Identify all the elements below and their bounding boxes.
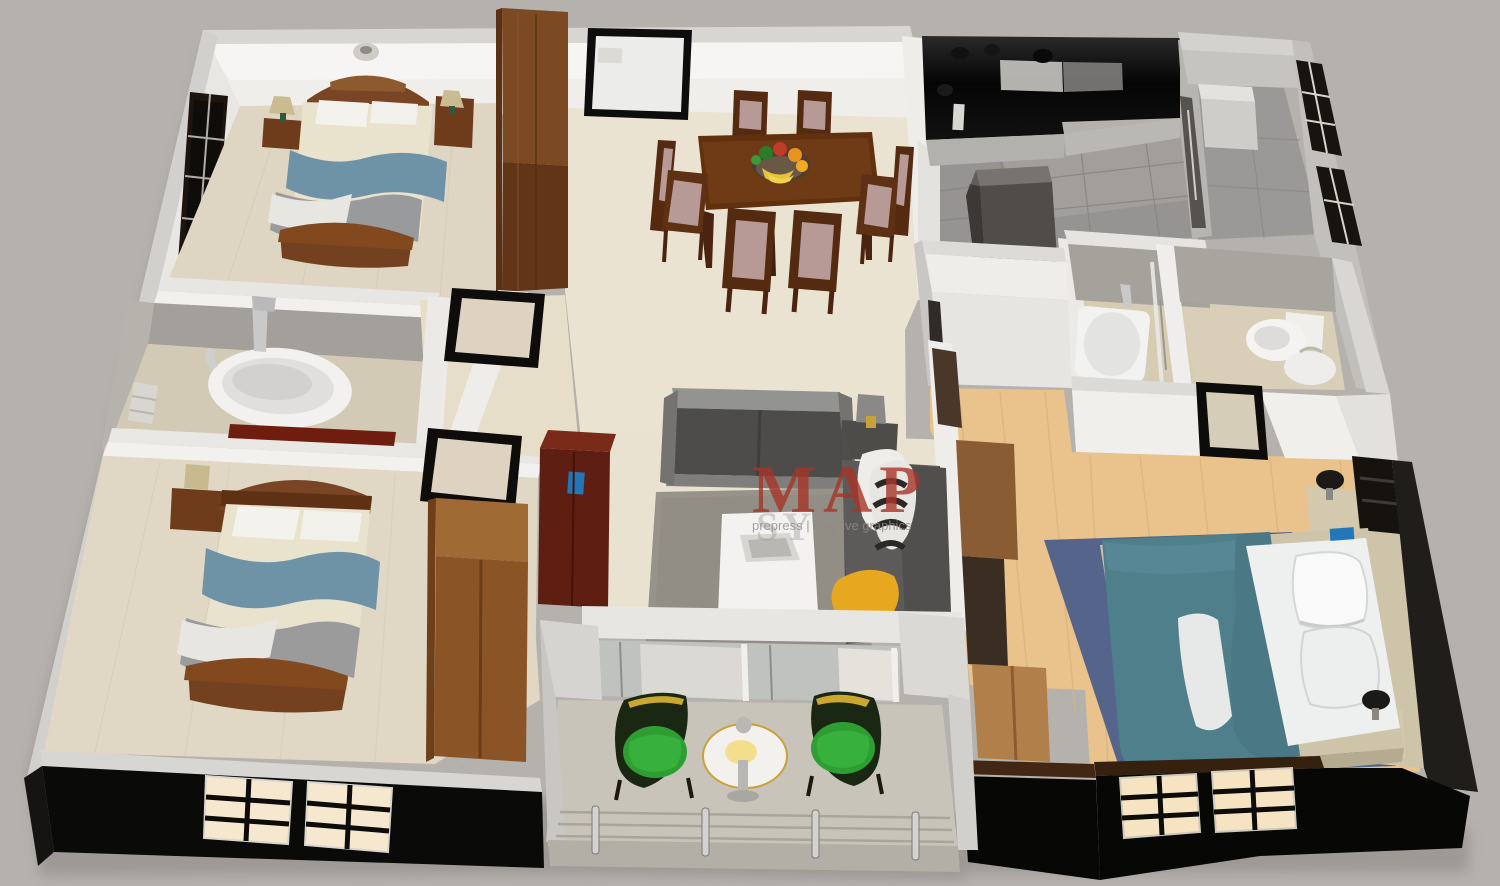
svg-text:prepress | creative graphics: prepress | creative graphics (752, 518, 912, 533)
